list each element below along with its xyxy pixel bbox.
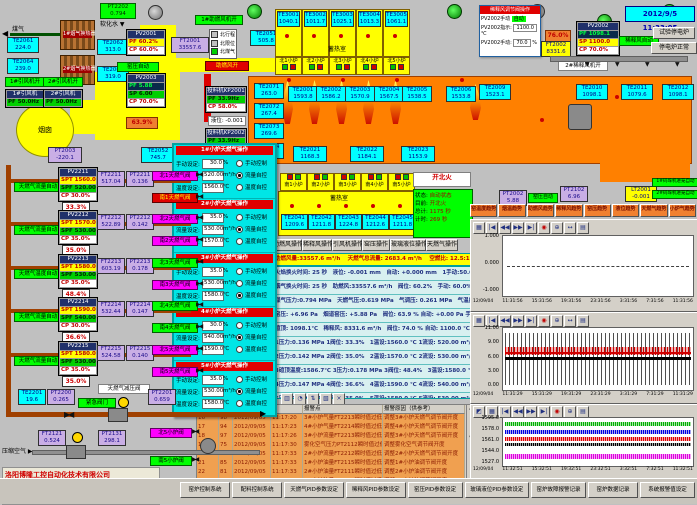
pv2212-panel[interactable]: PV2212SPT 1570.0SPF 530.00CP 35.0%: [58, 210, 98, 245]
te3004-box: TE30041013.3: [358, 11, 381, 27]
last-icon[interactable]: ▶|: [525, 315, 537, 327]
unit-label: m³/h: [223, 226, 236, 232]
charger1-panel[interactable]: 投料机KP2001PF 33.9HzCP 58.0%: [205, 86, 247, 113]
legend-item: 北行程: [211, 31, 235, 40]
trend-gas-button[interactable]: 天燃气趋势: [640, 204, 667, 217]
soft-water-label: 软化水 ▼: [100, 19, 125, 28]
chart3-x-axis: 12/09/0411:32:5115:32:5119:32:5123:32:51…: [473, 467, 693, 472]
unit-label: %: [223, 160, 228, 166]
alarm-dot: [341, 78, 345, 82]
burner4-temp-radio[interactable]: 温度自控: [236, 345, 267, 353]
chart3-plot: [502, 417, 694, 467]
pt2201-box: PT22010.659: [148, 389, 176, 405]
gas-main-pipe: [6, 412, 262, 417]
pv2214-panel[interactable]: PV2214SPT 1590.0SPF 540.00CP 30.0%: [58, 297, 98, 332]
alarm-dot: [339, 34, 343, 38]
gas-flow-arrow-icon: ▶: [260, 409, 266, 418]
south1-gas-valve-label: 南1天燃气阀: [152, 193, 198, 203]
te3002-box: TE30021011.7: [304, 11, 327, 27]
ft2214-box: FT2214532.44: [97, 301, 125, 317]
direction-legend: 北行程 北限位 北煤气: [209, 29, 237, 59]
te2064-box: TE2064239.0: [7, 58, 39, 74]
y-tick: 1.000: [473, 233, 499, 239]
valve-icon: ▶◀: [196, 215, 201, 221]
alarm-row[interactable]: 22812012/09/0511:17:332#小炉油量FT2111瞬时值过低调…: [197, 468, 467, 477]
te2071-box: TE2071263.0: [254, 83, 284, 99]
burner3-manual-radio[interactable]: 手动控制: [236, 267, 267, 275]
unit-label: %: [223, 376, 228, 382]
temp-series-red: [505, 437, 691, 441]
burner1-title: 1#小炉天燃气操作: [176, 146, 273, 155]
alarm-row[interactable]: 19752012/09/0511:17:30雾化空气压力PT2112瞬时值过低调…: [197, 441, 467, 450]
nav-dilution-pid-button[interactable]: 稀释风PID参数设定: [346, 482, 406, 498]
id-fan2-status: 2#引风机开: [43, 77, 83, 87]
pt2003-box: PT2003-220.1: [48, 147, 82, 163]
next-icon[interactable]: ▶▶: [512, 315, 524, 327]
temp-set-label: 温度设定:: [176, 400, 200, 408]
y-tick: 9.00: [473, 339, 499, 345]
fire-status-row: 状态: 自动状态: [415, 191, 471, 199]
unit-label: ℃: [223, 292, 229, 298]
alarm-dot: [460, 78, 464, 82]
nav-gas-pid-button[interactable]: 天燃气PID参数设定: [284, 482, 344, 498]
dilution-header-pipe: [550, 56, 688, 62]
alarm-dot: [317, 204, 321, 208]
valve-icon: ▶◀: [64, 411, 72, 419]
manual-set-label: 手动设定:: [176, 160, 200, 168]
te2201-box: TE220119.6: [18, 389, 46, 405]
burner4-manual-radio[interactable]: 手动控制: [236, 321, 267, 329]
id-fan2-panel[interactable]: 2#引风机PF 50.0Hz: [43, 89, 83, 108]
nav-alarm-record-button[interactable]: 窑炉故障报警记录: [531, 482, 586, 498]
te2041-box: TE20411209.6: [281, 214, 308, 230]
nav-data-record-button[interactable]: 窑炉数据记录: [588, 482, 638, 498]
pressure-op-button[interactable]: 窑压操作: [362, 239, 390, 251]
north5-gas-valve-label: 北5天燃气阀: [152, 345, 198, 355]
alarm-dot: [366, 34, 370, 38]
y-tick: 3.00: [473, 368, 499, 374]
south-port-4: 南4小炉: [361, 173, 388, 191]
te2073-box: TE2073269.6: [254, 123, 284, 139]
id-fan-op-button[interactable]: 引风机操作: [332, 239, 362, 251]
alarm-dot: [615, 95, 619, 99]
valve-icon: ▶◀: [196, 194, 201, 200]
gas-op-button[interactable]: 天燃气操作: [426, 239, 458, 251]
stop-furnace-normal-button[interactable]: 停电炉正常: [651, 42, 697, 54]
te2061-box: TE2061224.0: [7, 37, 39, 53]
nozzle-icon: ▼: [585, 62, 588, 68]
pt2102-box: PT21026.96: [560, 186, 588, 202]
te2023-box: TE20231153.9: [401, 146, 435, 162]
te2005-box: TE20051538.5: [402, 86, 432, 102]
te3005-box: TE30051061.1: [385, 11, 408, 27]
te2022-box: TE20221184.1: [350, 146, 384, 162]
north-port-2: 北2小炉: [302, 57, 329, 75]
temp-series-green: [505, 422, 691, 426]
unit-label: m³/h: [223, 172, 236, 178]
nav-pressure-pid-button[interactable]: 窑压PID参数设定: [408, 482, 463, 498]
fan-icon: [148, 5, 163, 20]
south-port-3: 南3小炉: [334, 173, 361, 191]
temp-series-magenta: [505, 454, 691, 459]
level-op-button[interactable]: 玻璃液位操作: [390, 239, 426, 251]
temp-set-label: 温度设定:: [176, 184, 200, 192]
te2021-box: TE20211168.3: [293, 146, 327, 162]
burner4-manual-input[interactable]: 30.0: [202, 321, 224, 331]
motor-icon: [568, 104, 592, 130]
alarm-dot: [285, 34, 289, 38]
burner1-temp-radio[interactable]: 温度自控: [236, 183, 267, 191]
pt2202-box: PT22020.794: [100, 3, 136, 19]
trend-pressure-button[interactable]: 窑压趋势: [584, 204, 611, 217]
pt2200-box: PT22000.265: [47, 389, 75, 405]
chart2-x-axis: 12/09/0411:31:2915:31:2919:31:2923:31:29…: [473, 392, 693, 397]
train1-auto-label: 天燃气流量自动: [14, 182, 62, 192]
dilution-manual-row: PV2002手动: 70.0 %: [480, 38, 540, 47]
north1-gas-valve-label: 北1天燃气阀: [152, 171, 198, 181]
te2004-box: TE20041567.5: [374, 86, 404, 102]
dilution-mode-row: PV2002手动 自动: [480, 14, 540, 23]
scada-furnace-screen: { "header": {"datetime": "2012/9/5 11:33…: [0, 0, 697, 503]
nozzle-icon: ▼: [675, 62, 678, 68]
fire-status-row: 总计: 1175 秒: [415, 207, 471, 215]
valve-icon: ▶◀: [196, 172, 201, 178]
alarm-dot: [371, 204, 375, 208]
glass-level-box: 液位: -0.001: [208, 116, 246, 126]
heat-exchanger-1-label: 1#烟气换热器: [63, 31, 92, 38]
alarm-dot: [287, 78, 291, 82]
valve-icon: ▶◀: [196, 237, 201, 243]
comb-air-damper-label: 助燃风开: [205, 61, 249, 71]
zoom-icon[interactable]: ⊕: [551, 222, 563, 234]
burner5-temp-radio[interactable]: 温度自控: [236, 399, 267, 407]
south2-gas-valve-label: 南2天燃气阀: [152, 236, 198, 246]
flow-meter-icon: [108, 408, 128, 422]
pv2213-panel[interactable]: PV2213SPT 1580.0SPF 530.00CP 35.0%: [58, 254, 98, 289]
pv2211-panel[interactable]: PV2211SPT 1560.0SPF 520.00CP 30.0%: [58, 167, 98, 202]
dilution-auto-badge[interactable]: 自动: [512, 16, 526, 22]
fan-icon: [247, 4, 262, 19]
trend-port-gas-button[interactable]: 小炉气趋势: [669, 204, 696, 217]
ft2211-box: FT2211517.04: [97, 171, 125, 187]
ft2212-box: FT2212522.89: [97, 214, 125, 230]
burner2-manual-radio[interactable]: 手动控制: [236, 213, 267, 221]
train5-auto-label: 天燃气流量自动: [14, 356, 62, 366]
south-regen-label: 蓄热室: [330, 193, 348, 202]
south-port-2: 南2小炉: [307, 173, 334, 191]
te2003-box: TE20031570.9: [345, 86, 375, 102]
fire-direction-box: 开北火: [413, 172, 471, 187]
unit-label: ℃: [223, 346, 229, 352]
nav-level-pid-button[interactable]: 玻璃液位PID参数设定: [465, 482, 530, 498]
next-icon[interactable]: ▶▶: [512, 222, 524, 234]
export-icon[interactable]: ▤: [577, 315, 589, 327]
id-fan1-panel[interactable]: 1#引风机PF 50.0Hz: [5, 89, 45, 108]
te2062-box: TE2062313.0: [97, 39, 129, 55]
ft2121-box: FT21210.524: [38, 430, 66, 446]
dilution-pv-value[interactable]: 1100.0: [513, 24, 537, 32]
burner5-flow-input[interactable]: 530.00: [202, 387, 224, 397]
unit-label: m³/h: [223, 388, 236, 394]
valve-icon: ▶◀: [196, 368, 201, 374]
north-port-4: 北4小炉: [356, 57, 383, 75]
emergency-valve-button[interactable]: 紧急阀门: [78, 398, 116, 408]
alarm-dot: [395, 78, 399, 82]
unit-label: ℃: [223, 184, 229, 190]
level-trend-chart: ▦|◀◀◀▶▶▶|◉⊕↔▤ 1.000 0.000 -1.000 12/09/0…: [470, 219, 697, 312]
heat-exchanger-1: 1#烟气换热器: [60, 20, 95, 50]
nozzle-icon: ▼: [645, 62, 648, 68]
burner5-manual-radio[interactable]: 手动控制: [236, 375, 267, 383]
unit-label: ℃: [223, 238, 229, 244]
gauge-icon: [72, 432, 83, 443]
pt2215-box: PT22150.140: [126, 345, 154, 361]
south4-gas-valve-label: 南4天燃气阀: [152, 323, 198, 333]
y-tick: 1578.0: [473, 426, 499, 432]
te2001-box: TE20011593.8: [288, 86, 318, 102]
legend-item: 北煤气: [211, 48, 235, 57]
burner1-manual-radio[interactable]: 手动控制: [236, 159, 267, 167]
burner2-temp-radio[interactable]: 温度自控: [236, 237, 267, 245]
valve-icon: ▶◀: [192, 457, 197, 463]
burner3-temp-input[interactable]: 1580.0: [202, 291, 224, 301]
burner5-flow-radio[interactable]: 流量自控: [236, 387, 267, 395]
te2006-box: TE20061533.8: [446, 86, 476, 102]
unit-label: %: [223, 214, 228, 220]
regen-room-label: 蓄热室: [328, 44, 346, 53]
id-fan1-status: 1#引风机开: [5, 77, 45, 87]
fire-status-box: 状态: 自动状态 目前: 开北火 总计: 1175 秒 计时: 269 秒: [413, 189, 473, 238]
nozzle-icon: ▼: [615, 62, 618, 68]
south5-gas-valve-label: 南5天燃气阀: [152, 367, 198, 377]
burner4-flow-radio[interactable]: 流量自控: [236, 333, 267, 341]
y-tick: 6.00: [473, 354, 499, 360]
gas-reducer-label: 天燃气减压阀: [98, 384, 150, 394]
ft2213-box: FT2213603.19: [97, 258, 125, 274]
burner5-manual-input[interactable]: 35.0: [202, 375, 224, 385]
pt2212-box: PT22120.142: [126, 214, 154, 230]
stack-damper-pos: 63.9%: [126, 117, 158, 129]
south-port-air-valve-label: 南5小炉阀: [150, 456, 192, 466]
y-tick: 0.00: [473, 382, 499, 388]
train5-valve-pos: 35.0%: [62, 376, 90, 387]
north2-gas-valve-label: 北2天燃气阀: [152, 214, 198, 224]
alarm-dot: [393, 34, 397, 38]
burner3-flow-radio[interactable]: 流量自控: [236, 279, 267, 287]
dilution-popup-title: 稀释风调节阀操作: [480, 6, 540, 14]
comb-fan-status: 1#助燃风机开: [195, 15, 243, 25]
chart1-x-axis: 12/09/0411:31:5615:31:5619:31:5623:31:56…: [473, 299, 693, 304]
temp-series-blue: [505, 430, 691, 434]
unit-label: %: [223, 268, 228, 274]
heat-exchanger-2-label: 2#烟气换热器: [63, 66, 92, 73]
trend-kiln-temp-button[interactable]: 窑温度趋势: [470, 204, 497, 217]
prev-icon[interactable]: ◀◀: [499, 315, 511, 327]
unit-label: m³/h: [223, 334, 236, 340]
dilution-fan2-status: 2#稀释风机开: [558, 61, 608, 71]
burner3-flow-input[interactable]: 530.00: [202, 279, 224, 289]
y-tick: 1544.0: [473, 448, 499, 454]
unit-label: m³/h: [223, 280, 236, 286]
te2043-box: TE20431224.8: [335, 214, 362, 230]
te2011-box: TE20111079.6: [621, 84, 653, 100]
stacker1-status: 1#码垛机进笼自动: [652, 178, 697, 187]
south3-gas-valve-label: 南3天燃气阀: [152, 280, 198, 290]
te2052-box: TE2052745.7: [141, 147, 175, 163]
alarm-row[interactable]: 21852012/09/0511:17:331#小炉油量FT2115瞬时值过低调…: [197, 459, 467, 468]
te2045-box: TE20451211.8: [389, 214, 416, 230]
train4-auto-label: 天燃气流量自动: [14, 312, 62, 322]
temp-series-black: [505, 443, 691, 446]
ft2002-box: FT20028331.6: [541, 41, 571, 57]
level-series-line: [507, 266, 689, 267]
gas-main-riser: [6, 165, 11, 417]
pressure-line-red: [505, 352, 691, 354]
burner1-flow-radio[interactable]: 流量自控: [236, 171, 267, 179]
fire-status-row: 计时: 269 秒: [415, 215, 471, 223]
valve-icon: ▶◀: [196, 302, 201, 308]
burner2-manual-input[interactable]: 35.0: [202, 213, 224, 223]
valve-icon: ▶◀: [192, 429, 197, 435]
kiln-pressure-auto-label2: 窑压自动: [528, 193, 558, 203]
temperature-trend-chart: ◩▦|◀◀◀▶▶▶|◉⊕▤ 1595.0 1578.0 1561.0 1544.…: [470, 404, 697, 479]
pv2002-panel[interactable]: PV2002PF 1098.1SP 1100.0CP 70.0%: [576, 21, 620, 56]
ft2001-box: FT200133557.6: [171, 37, 209, 53]
north3-gas-valve-label: 北3天燃气阀: [152, 258, 198, 268]
temp-set-label: 温度设定:: [176, 292, 200, 300]
alarm-row[interactable]: 18972012/09/0511:17:263#小炉流量FT2213瞬时值过低调…: [197, 432, 467, 441]
pressure-line-black: [505, 357, 691, 360]
dilution-manual-value[interactable]: 70.0: [513, 39, 530, 47]
burner5-temp-input[interactable]: 1580.0: [202, 399, 224, 409]
pt2214-box: PT22140.147: [126, 301, 154, 317]
valve-icon: ▶◀: [196, 259, 201, 265]
legend-item: 北限位: [211, 40, 235, 49]
valve-icon: ▶◀: [196, 324, 201, 330]
burner2-flow-input[interactable]: 530.00: [202, 225, 224, 235]
trend-comb-air-button[interactable]: 助燃风趋势: [527, 204, 554, 217]
nav-kiln-control-button[interactable]: 窑炉控制系统: [180, 482, 230, 498]
pan-icon[interactable]: ◉: [538, 315, 550, 327]
pressure-trend-chart: ▦|◀◀◀▶▶▶|◉⊕↔▤ 11.00 9.00 6.00 3.00 0.00 …: [470, 312, 697, 404]
dilution-op-button[interactable]: 稀释风操作: [302, 239, 332, 251]
kiln-pressure-auto-label: 窑压自动: [117, 62, 159, 72]
ft2215-box: FT2215524.58: [97, 345, 125, 361]
alarm-dot: [398, 204, 402, 208]
fit-icon[interactable]: ↔: [564, 315, 576, 327]
pt2213-box: PT22130.178: [126, 258, 154, 274]
burner2-flow-radio[interactable]: 流量自控: [236, 225, 267, 233]
north-port-5: 北5小炉: [383, 57, 410, 75]
te2010-box: TE20101098.1: [576, 84, 608, 100]
alarm-dot: [344, 204, 348, 208]
north4-gas-valve-label: 北4天燃气阀: [152, 301, 198, 311]
coal-gas-label: 煤气: [12, 24, 24, 33]
alarm-dot: [290, 204, 294, 208]
nav-batch-control-button[interactable]: 配料控制系统: [232, 482, 282, 498]
trend-level-button[interactable]: 液位趋势: [612, 204, 639, 217]
fit-icon[interactable]: ↔: [564, 222, 576, 234]
unit-label: %: [223, 322, 228, 328]
burner2-temp-input[interactable]: 1570.0: [202, 237, 224, 247]
flow-meter-icon: [66, 445, 86, 459]
pv2001-panel[interactable]: PV2001PF 60.2%CP 60.0%: [126, 29, 166, 56]
y-tick: 0.000: [473, 260, 499, 266]
trend-flue-temp-button[interactable]: 烟温趋势: [498, 204, 525, 217]
flow-set-label: 流量设定:: [176, 388, 200, 396]
fan-icon: [447, 4, 462, 19]
south-port-1: 南1小炉: [280, 173, 307, 191]
zoom-icon[interactable]: ⊕: [551, 315, 563, 327]
y-tick: 11.00: [473, 325, 499, 331]
pan-icon[interactable]: ◉: [538, 222, 550, 234]
pt2211-box: PT22110.136: [126, 171, 154, 187]
burner1-temp-input[interactable]: 1560.0: [202, 183, 224, 193]
te2012-box: TE20121098.1: [662, 84, 694, 100]
stacker2-status: 2#码垛机进笼自动: [652, 190, 697, 199]
train2-auto-label: 天燃气流量自动: [14, 225, 62, 235]
pv2215-panel[interactable]: PV2215SPT 1580.0SPF 530.00CP 35.0%: [58, 341, 98, 376]
trend-button-bar: 窑温度趋势 烟温趋势 助燃风趋势 稀释风趋势 窑压趋势 液位趋势 天燃气趋势 小…: [470, 204, 696, 217]
chart2-plot: [502, 327, 694, 391]
prev-icon[interactable]: ◀◀: [499, 222, 511, 234]
burner4-temp-input[interactable]: 1590.0: [202, 345, 224, 355]
burner1-manual-input[interactable]: 30.0: [202, 159, 224, 169]
trend-dilution-button[interactable]: 稀释风趋势: [555, 204, 582, 217]
burner1-flow-input[interactable]: 520.00: [202, 171, 224, 181]
te2002-box: TE20021586.2: [316, 86, 346, 102]
dilution-popup: 稀释风调节阀操作 PV2002手动 自动 PV2002指示: 1100.0 ℃ …: [479, 5, 541, 57]
y-tick: 1561.0: [473, 437, 499, 443]
te2072-box: TE2072267.4: [254, 103, 284, 119]
last-icon[interactable]: ▶|: [525, 222, 537, 234]
pt2131-box: PT2131298.1: [98, 430, 126, 446]
valve-icon: ▶◀: [196, 346, 201, 352]
flow-set-label: 流量设定:: [176, 226, 200, 234]
burner3-temp-radio[interactable]: 温度自控: [236, 291, 267, 299]
burner4-flow-input[interactable]: 540.00: [202, 333, 224, 343]
valve-icon: ▶◀: [196, 281, 201, 287]
north-port-air-valve-label: 北5小炉阀: [150, 428, 192, 438]
te3001-box: TE30011040.1: [277, 11, 300, 27]
pump-icon: [200, 438, 216, 454]
y-tick: -1.000: [473, 287, 499, 293]
compressed-air-label: 压缩空气 ▶: [2, 446, 33, 455]
y-tick: 1595.0: [473, 415, 499, 421]
export-icon[interactable]: ▤: [577, 222, 589, 234]
te2009-box: TE20091523.1: [479, 84, 511, 100]
te3003-box: TE30031025.1: [331, 11, 354, 27]
alarm-dot: [312, 34, 316, 38]
alarm-row[interactable]: 17942012/09/0511:17:234#小炉气量FT2214瞬时值过低调…: [197, 423, 467, 432]
datetime-box: 2012/9/5 11:33:05: [625, 6, 695, 22]
train3-auto-label: 天燃气温度自动: [14, 269, 62, 279]
nav-alarm-setting-button[interactable]: 系统报警值设定: [640, 482, 695, 498]
test-stop-furnace-button[interactable]: 试验停电炉: [653, 27, 695, 39]
te2044-box: TE20441212.6: [362, 214, 389, 230]
fire-status-row: 目前: 开北火: [415, 199, 471, 207]
alarm-dot: [540, 118, 544, 122]
flow-set-label: 流量设定:: [176, 334, 200, 342]
pv2003-panel[interactable]: PV2003PF 5.88SP 6.00CP 70.0%: [126, 73, 166, 108]
dilution-pv-row: PV2002指示: 1100.0 ℃: [480, 23, 540, 38]
y-tick: 1527.0: [473, 459, 499, 465]
north-port-1: 北1小炉: [275, 57, 302, 75]
footer-buttons: 窑炉控制系统 配料控制系统 天燃气PID参数设定 稀释风PID参数设定 窑压PI…: [180, 482, 695, 498]
burner3-manual-input[interactable]: 35.0: [202, 267, 224, 277]
te2042-box: TE20421211.8: [308, 214, 335, 230]
south-port-5: 南5小炉: [388, 173, 415, 191]
